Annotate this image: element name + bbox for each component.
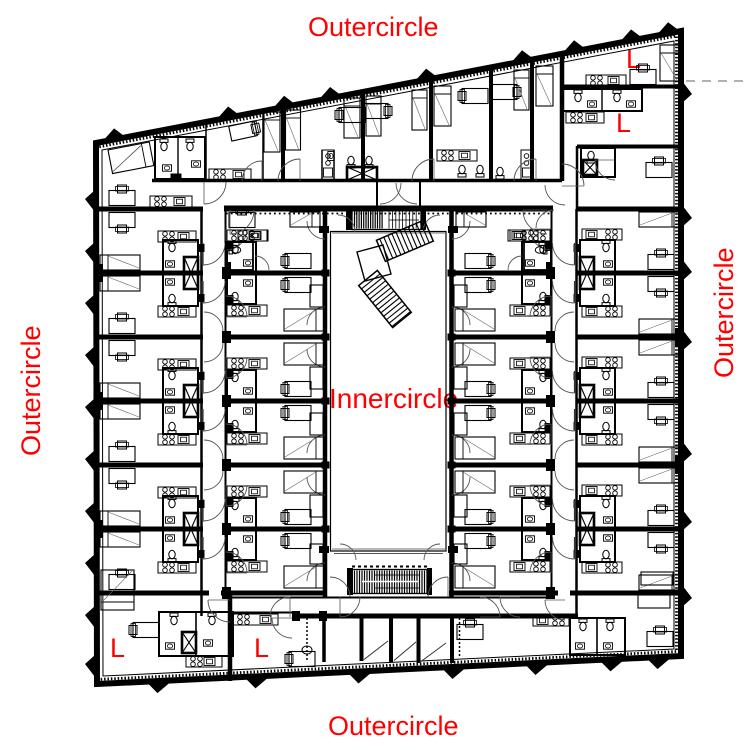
- svg-text:Outercircle: Outercircle: [16, 325, 46, 456]
- svg-text:L: L: [616, 108, 631, 138]
- svg-text:L: L: [110, 633, 125, 663]
- svg-text:Outercircle: Outercircle: [709, 247, 739, 378]
- svg-text:Innercircle: Innercircle: [329, 383, 458, 414]
- svg-text:Outercircle: Outercircle: [308, 12, 439, 42]
- svg-text:Outercircle: Outercircle: [328, 711, 459, 741]
- svg-text:L: L: [254, 633, 269, 663]
